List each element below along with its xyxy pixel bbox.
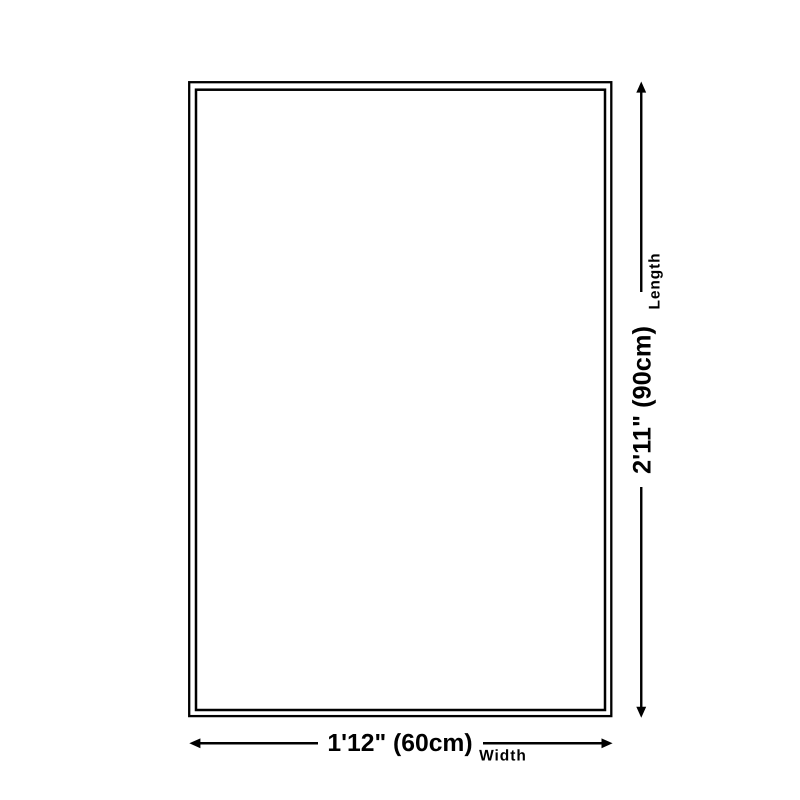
svg-text:1'12" (60cm): 1'12" (60cm)	[327, 730, 472, 757]
svg-text:Length: Length	[646, 252, 663, 309]
svg-text:Width: Width	[479, 747, 527, 764]
svg-text:2'11" (90cm): 2'11" (90cm)	[628, 326, 656, 474]
